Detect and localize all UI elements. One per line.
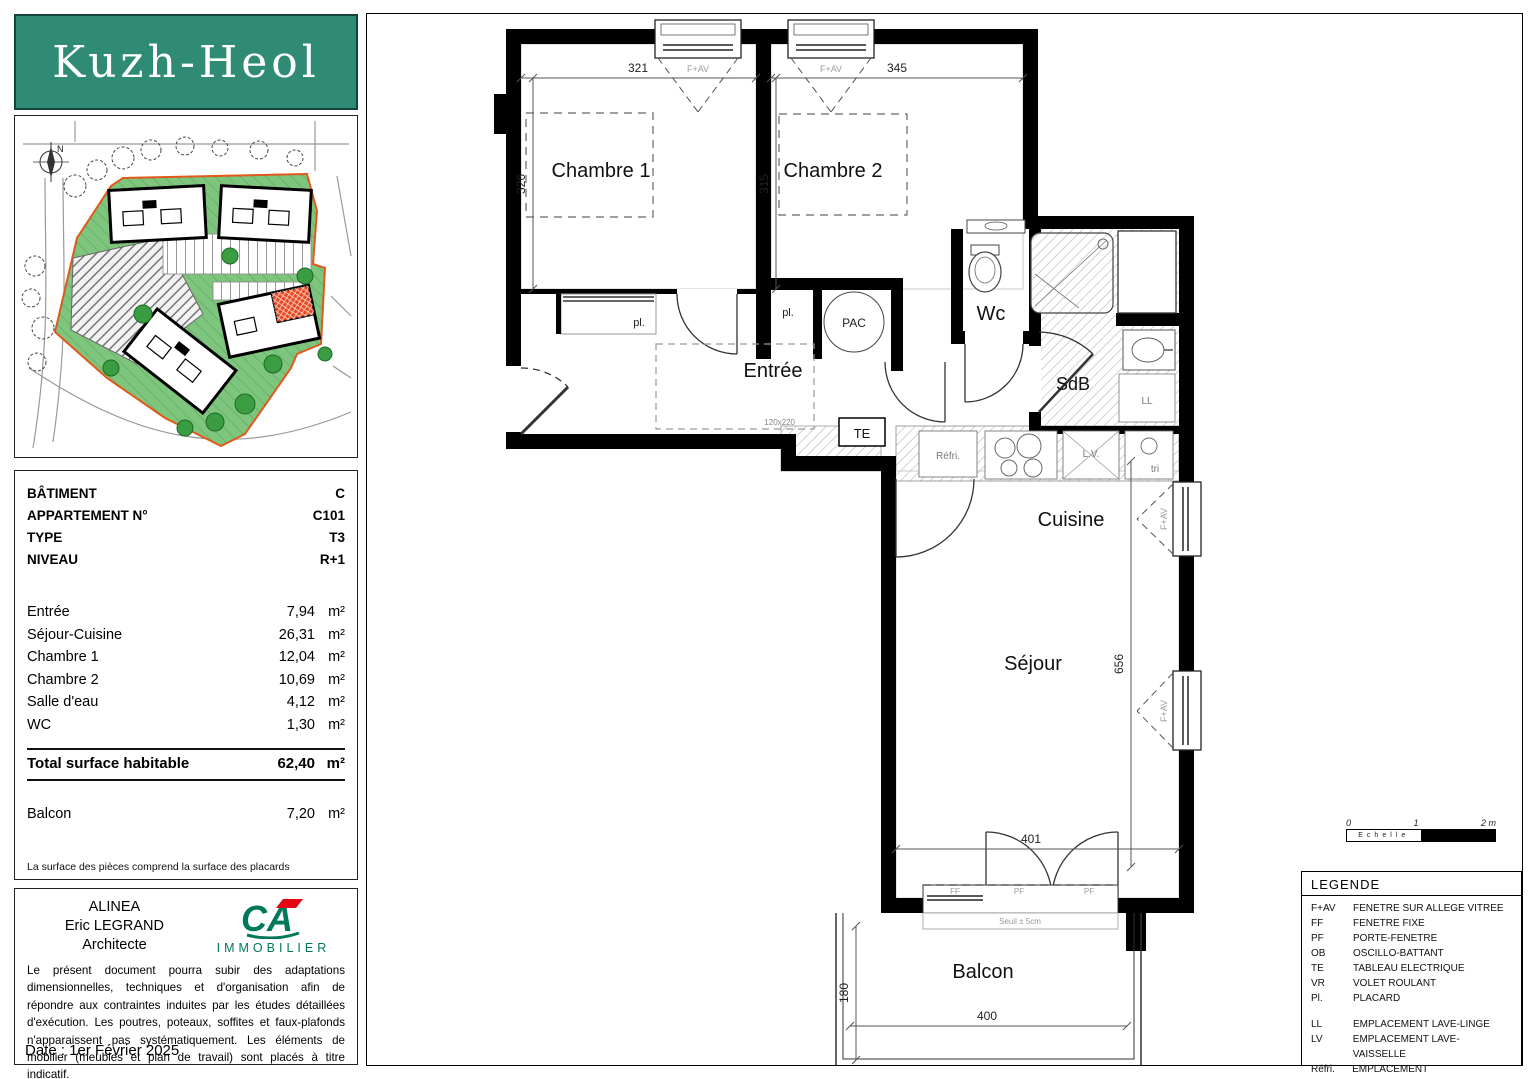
electrical-panel: TE xyxy=(839,418,885,446)
legend-item: LVEMPLACEMENT LAVE-VAISSELLE xyxy=(1311,1032,1512,1062)
scale-tick-2: 2 m xyxy=(1481,818,1496,828)
window-top-2: F+AV xyxy=(788,20,874,112)
field-row: BÂTIMENTC xyxy=(27,483,345,505)
washer-label: LL xyxy=(1141,396,1153,407)
ca-immobilier-logo: CA IMMOBILIER xyxy=(202,897,345,955)
ca-logo-icon: CA xyxy=(237,897,309,939)
field-label: BÂTIMENT xyxy=(27,483,97,505)
room-label-balcon: Balcon xyxy=(952,961,1013,983)
room-label-chambre-2: Chambre 2 xyxy=(784,160,883,182)
legend-title: LEGENDE xyxy=(1311,877,1512,892)
bin-label: tri xyxy=(1151,464,1159,475)
window-label: F+AV xyxy=(1159,508,1169,530)
total-surface-row: Total surface habitable62,40m² xyxy=(27,748,345,781)
room-label-cuisine: Cuisine xyxy=(1038,509,1105,531)
compass-icon: N xyxy=(33,142,69,182)
architect-panel: ALINEA Eric LEGRAND Architecte CA IMMOBI… xyxy=(14,888,358,1065)
dim-balcon-width: 400 xyxy=(977,1009,997,1023)
scale-tick-0: 0 xyxy=(1346,818,1351,828)
placard-chambre-2: pl. PAC xyxy=(782,290,884,359)
placard-label: pl. xyxy=(782,307,794,319)
scale-black-segment xyxy=(1422,830,1496,841)
area-row: Entrée7,94m² xyxy=(27,601,345,624)
window-right-1: F+AV xyxy=(1137,482,1201,556)
field-label: NIVEAU xyxy=(27,549,78,571)
room-label-sejour: Séjour xyxy=(1004,653,1062,675)
legend-item: LLEMPLACEMENT LAVE-LINGE xyxy=(1311,1017,1512,1032)
dim-ch1-height: 326 xyxy=(514,174,528,194)
dim-ch2-height: 315 xyxy=(757,174,771,194)
doors xyxy=(521,294,1118,898)
area-row: Chambre 210,69m² xyxy=(27,669,345,692)
field-value: C xyxy=(335,483,345,505)
field-label: APPARTEMENT N° xyxy=(27,505,148,527)
scale-bar: 0 1 2 m Echelle xyxy=(1346,818,1496,842)
dim-ch1-width: 321 xyxy=(628,61,648,75)
apartment-info-panel: BÂTIMENTC APPARTEMENT N°C101 TYPET3 NIVE… xyxy=(14,470,358,880)
legend-item: FFFENETRE FIXE xyxy=(1311,916,1512,931)
legend-divider xyxy=(1302,895,1521,896)
field-row: TYPET3 xyxy=(27,527,345,549)
legend-item: Réfri.EMPLACEMENT REFRIGERATEUR xyxy=(1311,1062,1512,1079)
site-plan: N xyxy=(14,115,358,458)
legend-item: Pl.PLACARD xyxy=(1311,991,1512,1006)
area-row: Chambre 112,04m² xyxy=(27,646,345,669)
te-label: TE xyxy=(854,426,871,441)
firm-name: ALINEA xyxy=(27,898,202,917)
wc-fixtures xyxy=(967,220,1025,292)
ca-logo-subtitle: IMMOBILIER xyxy=(217,941,331,955)
residence-name: Kuzh-Heol xyxy=(52,37,320,88)
site-plan-drawing: N xyxy=(15,116,357,457)
architect-name: Eric LEGRAND xyxy=(27,917,202,936)
door-window-label: PF xyxy=(1084,887,1094,896)
field-label: TYPE xyxy=(27,527,62,549)
balcony-area-row: Balcon7,20m² xyxy=(27,803,345,826)
window-label: F+AV xyxy=(687,64,709,74)
area-row: Séjour-Cuisine26,31m² xyxy=(27,624,345,647)
legend-item: F+AVFENETRE SUR ALLEGE VITREE xyxy=(1311,901,1512,916)
fridge-label: Réfri. xyxy=(936,451,960,462)
placard-chambre-1: pl. xyxy=(556,294,656,334)
plan-sheet: Kuzh-Heol xyxy=(0,0,1528,1079)
dim-balcon-height: 180 xyxy=(837,983,851,1003)
window-label: F+AV xyxy=(1159,700,1169,722)
residence-logo: Kuzh-Heol xyxy=(14,14,358,110)
legend-item: PFPORTE-FENETRE xyxy=(1311,931,1512,946)
scale-label: Echelle xyxy=(1347,830,1422,841)
pac-label: PAC xyxy=(842,316,866,330)
north-label: N xyxy=(57,144,64,154)
floor-plan-frame: F+AV F+AV F+AV xyxy=(366,13,1523,1066)
room-label-sdb: SdB xyxy=(1056,374,1090,394)
building-1 xyxy=(109,186,207,243)
kitchen-fixtures: Réfri. L.V. tri xyxy=(919,431,1173,479)
seuil-label: Seuil ± 5cm xyxy=(999,917,1041,926)
placard-label: pl. xyxy=(633,317,645,329)
area-row: WC1,30m² xyxy=(27,714,345,737)
dim-ch2-width: 345 xyxy=(887,61,907,75)
legend-item: OBOSCILLO-BATTANT xyxy=(1311,946,1512,961)
architect-role: Architecte xyxy=(27,936,202,955)
door-window-label: PF xyxy=(1014,887,1024,896)
dishwasher-label: L.V. xyxy=(1083,449,1100,460)
door-size-label: 120x220 xyxy=(764,418,795,427)
area-row: Salle d'eau4,12m² xyxy=(27,691,345,714)
field-row: APPARTEMENT N°C101 xyxy=(27,505,345,527)
fixed-window-label: FF xyxy=(950,887,960,896)
entree-soffit: 120x220 xyxy=(656,344,814,429)
window-right-2: F+AV xyxy=(1137,671,1201,750)
field-row: NIVEAUR+1 xyxy=(27,549,345,571)
window-label: F+AV xyxy=(820,64,842,74)
legend-panel: LEGENDE F+AVFENETRE SUR ALLEGE VITREE FF… xyxy=(1301,871,1522,1066)
field-value: C101 xyxy=(313,505,345,527)
room-label-entree: Entrée xyxy=(744,360,803,382)
legend-item: VRVOLET ROULANT xyxy=(1311,976,1512,991)
date-line: Date : 1er Février 2025 xyxy=(25,1042,179,1059)
legend-item: TETABLEAU ELECTRIQUE xyxy=(1311,961,1512,976)
window-top-1: F+AV xyxy=(655,20,741,112)
dim-sejour-height: 656 xyxy=(1112,654,1126,674)
surface-note: La surface des pièces comprend la surfac… xyxy=(27,861,290,873)
dim-sejour-width: 401 xyxy=(1021,832,1041,846)
disclaimer-text: Le présent document pourra subir des ada… xyxy=(27,962,345,1079)
field-value: R+1 xyxy=(320,549,345,571)
building-2 xyxy=(219,186,312,243)
field-value: T3 xyxy=(329,527,345,549)
scale-tick-1: 1 xyxy=(1413,818,1418,828)
room-areas-list: Entrée7,94m² Séjour-Cuisine26,31m² Chamb… xyxy=(27,601,345,736)
room-label-chambre-1: Chambre 1 xyxy=(552,160,651,182)
room-label-wc: Wc xyxy=(977,303,1006,325)
